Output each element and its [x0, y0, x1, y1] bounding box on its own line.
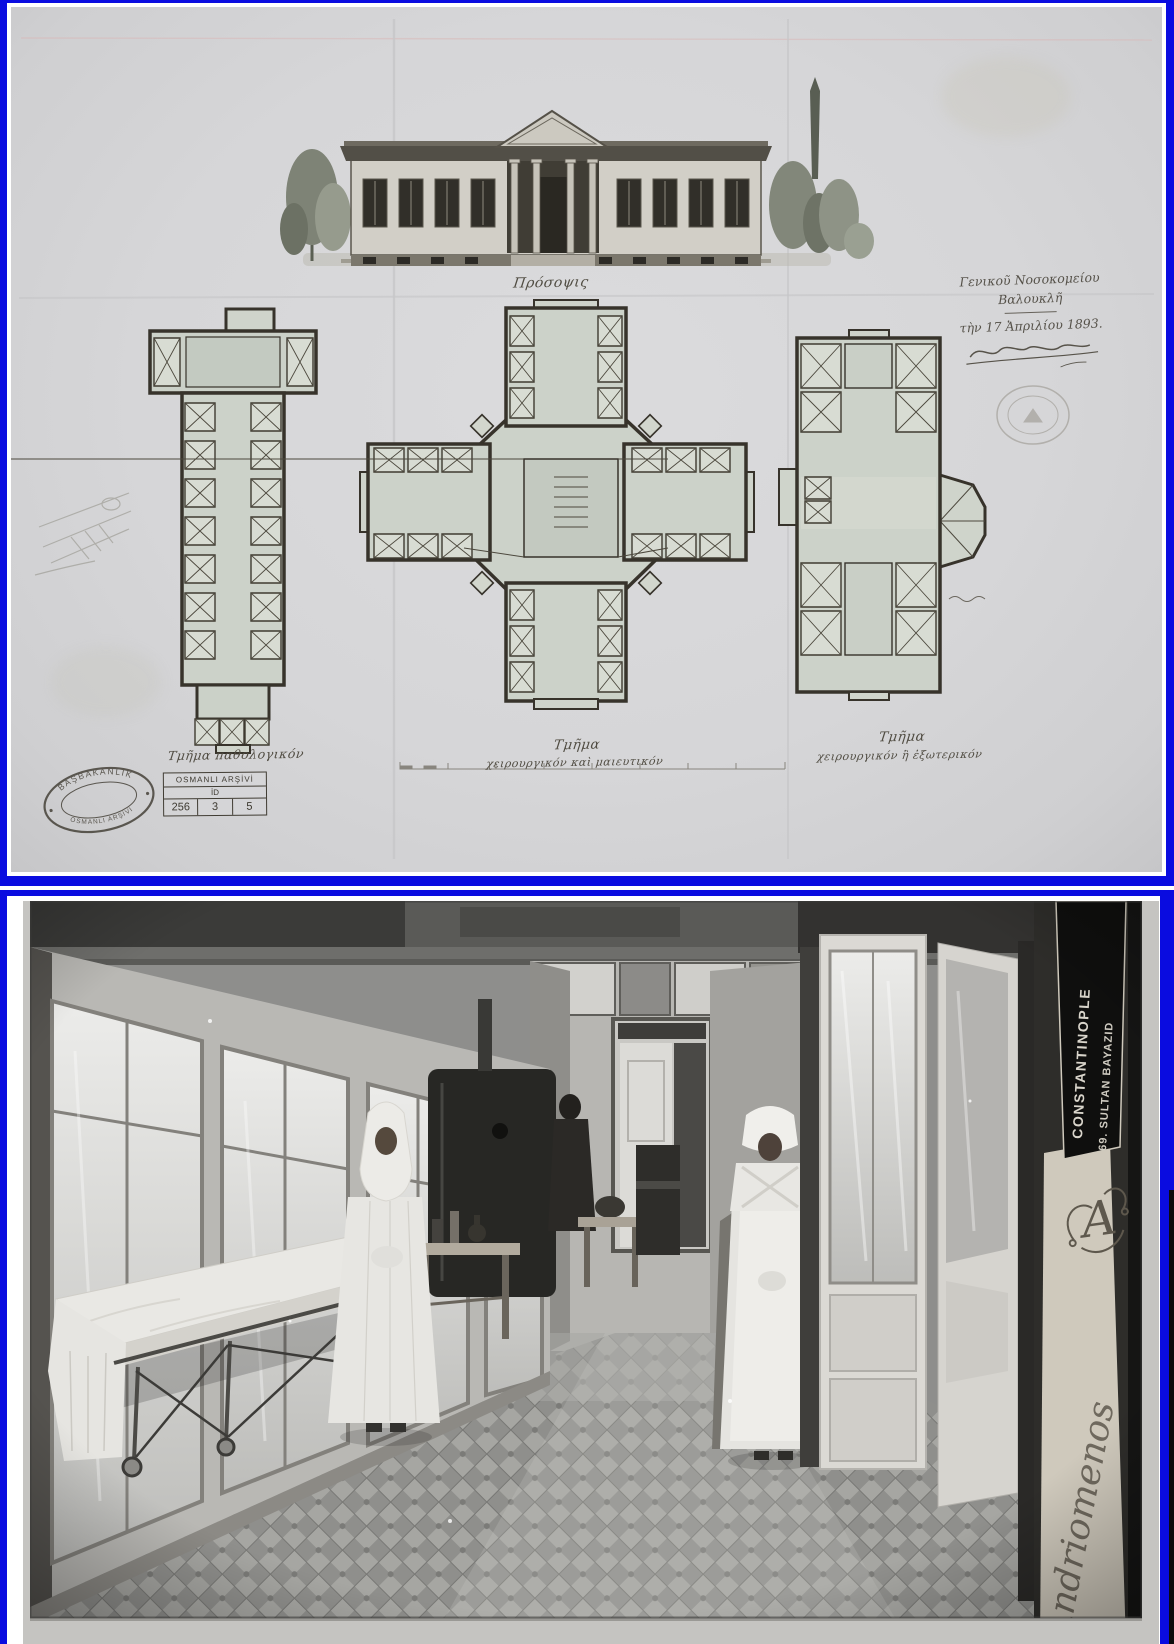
archive-table-header: OSMANLI ARŞİVİ — [164, 773, 266, 788]
faint-stamp — [997, 386, 1069, 444]
archive-table-cells: 256 3 5 — [164, 799, 266, 816]
floor-plan-right — [779, 330, 985, 700]
plan-right-caption-line1: Τμῆμα — [801, 727, 1003, 746]
page-canvas: BAŞBAKANLIK OSMANLI ARŞİVİ Πρόσοψις Τμῆμ… — [0, 0, 1174, 1644]
inscription-divider — [1005, 311, 1057, 314]
building-elevation — [280, 77, 874, 266]
frame-mat-top: BAŞBAKANLIK OSMANLI ARŞİVİ Πρόσοψις Τμῆμ… — [7, 3, 1166, 876]
card-bottom-edge — [30, 1618, 1142, 1644]
paper-stain — [941, 57, 1071, 137]
floor-plan-left — [150, 309, 316, 753]
paper-pink-line — [21, 38, 1152, 40]
stamp-arc-top-text: BAŞBAKANLIK — [54, 761, 136, 794]
archive-cell-2: 3 — [198, 799, 232, 815]
tiny-note-squiggle — [949, 597, 985, 602]
frame-mat-bottom: CONSTANTINOPLE 69. SULTAN BAYAZID A An — [7, 896, 1160, 1644]
pencil-sketch — [35, 493, 131, 575]
trees-left — [280, 149, 351, 261]
drawing-paper: BAŞBAKANLIK OSMANLI ARŞİVİ Πρόσοψις Τμῆμ… — [11, 7, 1162, 872]
architectural-drawing-frame: BAŞBAKANLIK OSMANLI ARŞİVİ Πρόσοψις Τμῆμ… — [0, 0, 1174, 886]
photograph-card: CONSTANTINOPLE 69. SULTAN BAYAZID A An — [23, 901, 1159, 1644]
archive-reference-table: OSMANLI ARŞİVİ İD 256 3 5 — [163, 772, 267, 817]
stamp-arc-top: BAŞBAKANLIK — [54, 761, 136, 794]
inscription-block: Γενικοῦ Νοσοκομείου Βαλουκλῆ τὴν 17 Ἀπρι… — [934, 268, 1127, 377]
elevation-caption: Πρόσοψις — [480, 274, 622, 292]
plan-left-caption: Τμῆμα παθολογικόν — [150, 746, 322, 764]
archive-stamp: BAŞBAKANLIK OSMANLI ARŞİVİ — [39, 758, 158, 840]
photo-vignette — [30, 901, 1142, 1618]
hospital-corridor-photo: CONSTANTINOPLE 69. SULTAN BAYAZID A An — [30, 901, 1142, 1644]
plan-center-caption-line1: Τμῆμα — [466, 735, 688, 755]
photograph-frame: CONSTANTINOPLE 69. SULTAN BAYAZID A An — [0, 890, 1174, 1644]
archive-table-sub: İD — [164, 787, 266, 800]
plan-right-caption: Τμῆμα χειρουργικόν ἢ ἐξωτερικόν — [799, 727, 1004, 763]
architect-signature — [962, 333, 1103, 376]
paper-stain — [51, 647, 161, 717]
archive-cell-1: 256 — [164, 799, 198, 815]
archive-cell-3: 5 — [233, 799, 266, 815]
trees-right — [769, 77, 874, 259]
plan-center-caption: Τμῆμα χειρουργικόν καὶ μαιευτικόν — [464, 735, 688, 771]
